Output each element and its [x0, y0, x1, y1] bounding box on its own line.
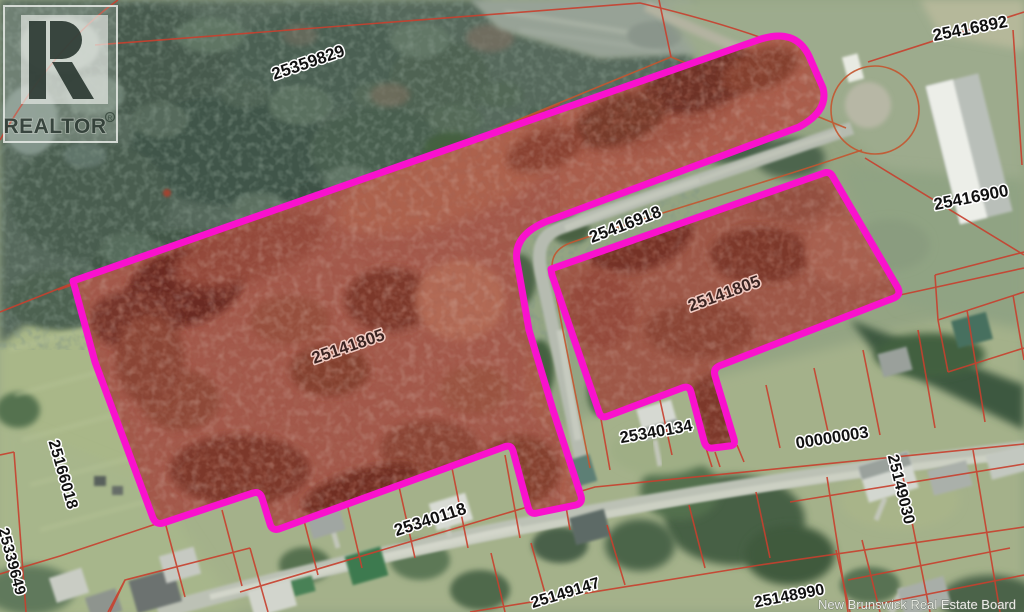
svg-text:New Brunswick Real Estate Boar: New Brunswick Real Estate Board: [818, 597, 1016, 612]
svg-text:REALTOR: REALTOR: [3, 115, 106, 138]
svg-text:R: R: [108, 115, 113, 122]
